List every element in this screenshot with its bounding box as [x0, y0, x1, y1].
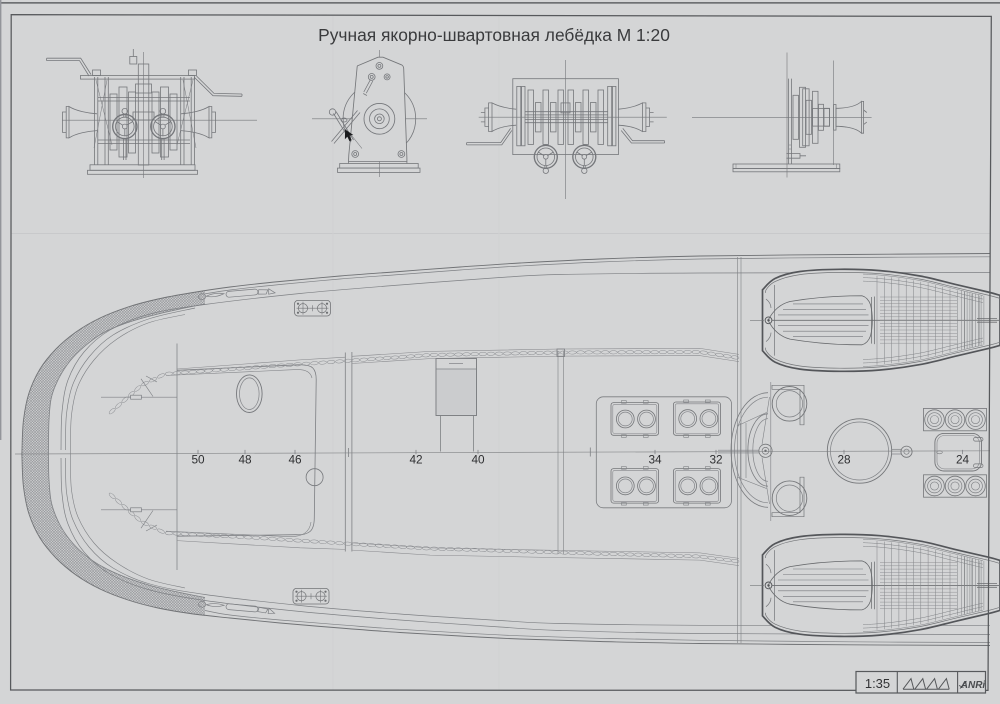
svg-text:48: 48 — [238, 453, 252, 467]
svg-text:24: 24 — [956, 453, 970, 467]
svg-text:46: 46 — [288, 453, 302, 467]
svg-text:ANRi: ANRi — [960, 680, 986, 691]
svg-text:40: 40 — [471, 453, 485, 467]
svg-text:42: 42 — [409, 453, 422, 467]
svg-text:34: 34 — [648, 453, 662, 467]
svg-text:50: 50 — [191, 453, 205, 467]
svg-text:1:35: 1:35 — [865, 676, 890, 691]
svg-text:Ручная якорно-швартовная лебёд: Ручная якорно-швартовная лебёдка М 1:20 — [318, 25, 670, 45]
svg-text:28: 28 — [837, 453, 851, 467]
svg-text:32: 32 — [709, 453, 722, 467]
